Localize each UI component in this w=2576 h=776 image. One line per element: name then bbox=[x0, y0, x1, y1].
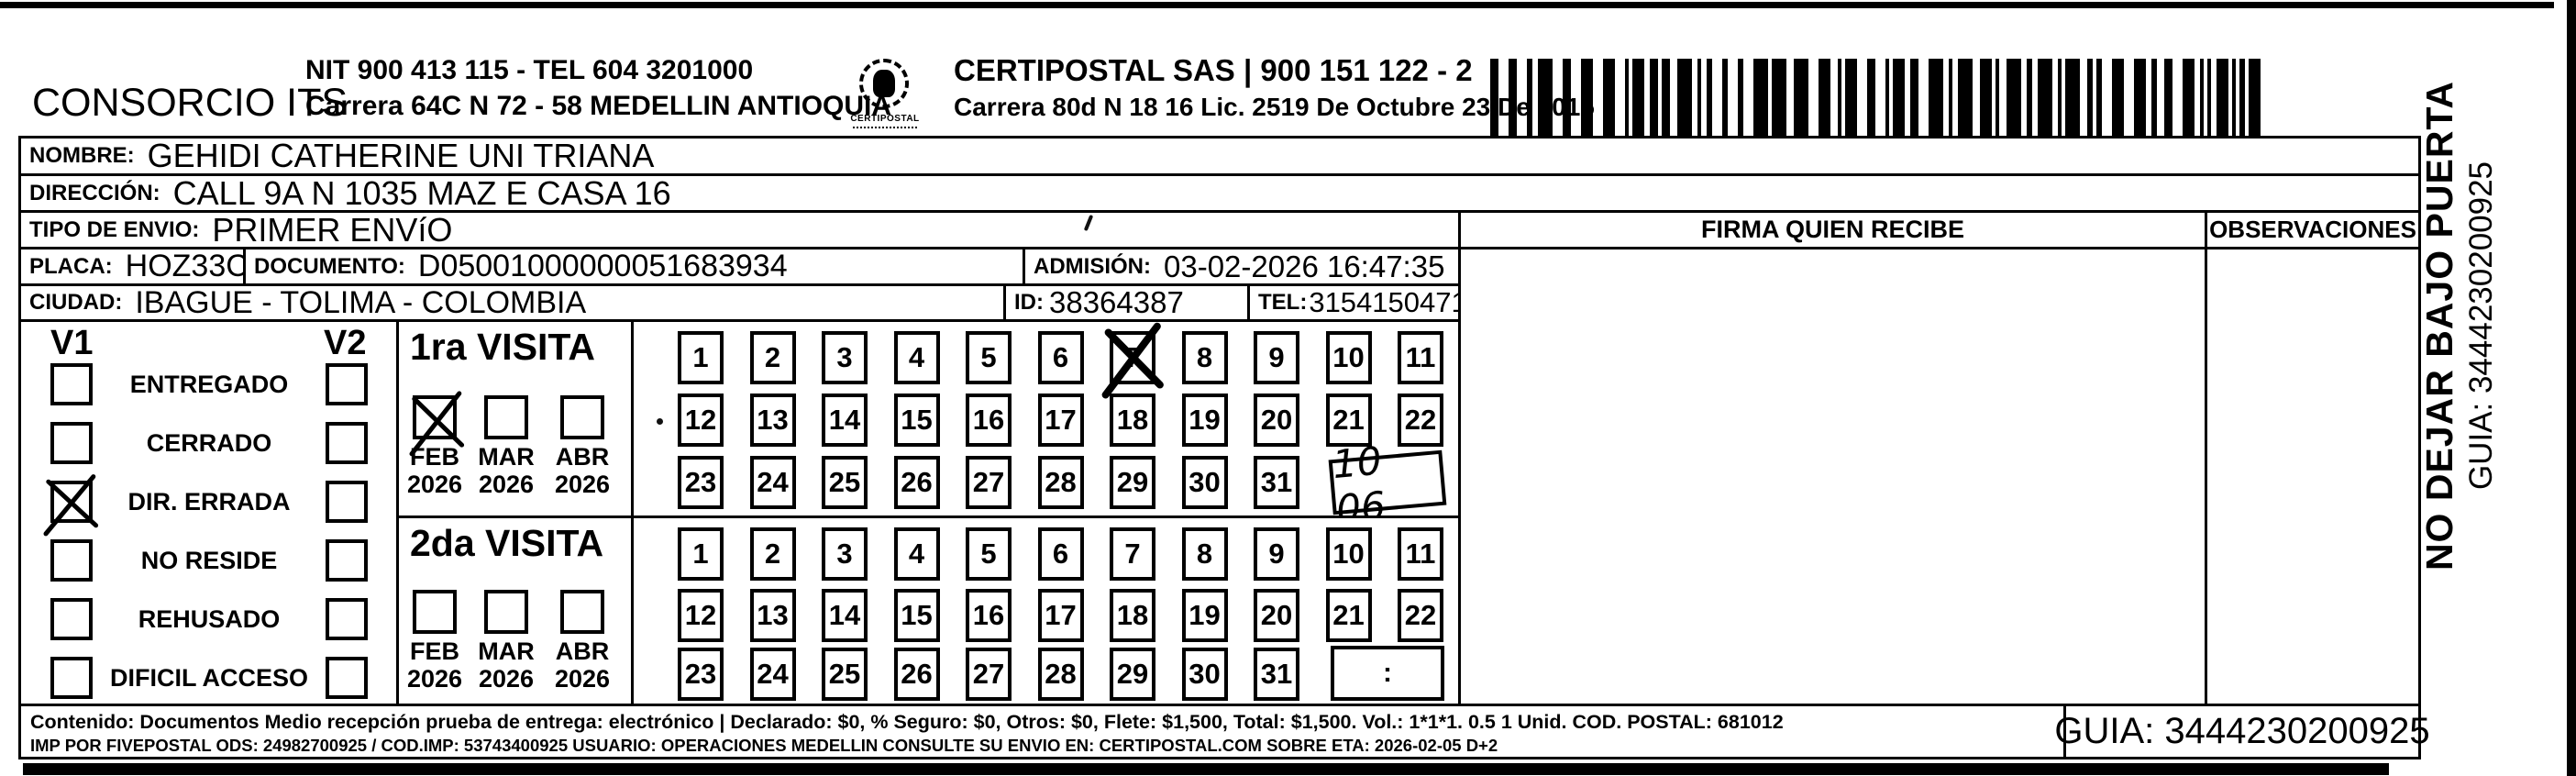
visit2-title: 2da VISITA bbox=[410, 522, 603, 565]
day-cell-26: 26 bbox=[894, 648, 940, 701]
documento-cell: DOCUMENTO: D05001000000051683934 bbox=[243, 247, 1025, 286]
visit2-month-checkbox-MAR bbox=[484, 590, 528, 634]
logo-text: CERTIPOSTAL bbox=[840, 114, 930, 124]
day-cell-16: 16 bbox=[966, 394, 1012, 447]
tipo-envio-value: PRIMER ENVíO bbox=[212, 211, 452, 249]
certipostal-logo-icon: CERTIPOSTAL bbox=[846, 59, 924, 147]
tel-value: 3154150471 bbox=[1309, 286, 1466, 319]
admision-value: 03-02-2026 16:47:35 bbox=[1164, 249, 1444, 284]
firma-header-cell: FIRMA QUIEN RECIBE bbox=[1458, 210, 2207, 249]
footer-content-line: Contenido: Documentos Medio recepción pr… bbox=[30, 711, 1784, 734]
year-label: 2026 bbox=[395, 665, 474, 693]
right-scan-line bbox=[2567, 0, 2576, 776]
day-cell-13: 13 bbox=[750, 589, 796, 642]
month-label: FEB bbox=[395, 443, 474, 471]
day-cell-9: 9 bbox=[1254, 527, 1299, 581]
year-label: 2026 bbox=[467, 665, 546, 693]
visit1-title: 1ra VISITA bbox=[410, 326, 595, 369]
firma-signature-area bbox=[1458, 247, 2207, 706]
observaciones-header: OBSERVACIONES bbox=[2209, 216, 2416, 244]
id-label: ID: bbox=[1014, 290, 1044, 316]
day-cell-14: 14 bbox=[822, 589, 868, 642]
nombre-row: NOMBRE: GEHIDI CATHERINE UNI TRIANA bbox=[18, 136, 2421, 176]
day-cell-8: 8 bbox=[1182, 331, 1228, 384]
tipo-envio-label: TIPO DE ENVIO: bbox=[29, 217, 199, 243]
day-cell-10: 10 bbox=[1326, 527, 1372, 581]
status-option-label: ENTREGADO bbox=[94, 371, 324, 399]
day-cell-19: 19 bbox=[1182, 589, 1228, 642]
day-cell-18: 18 bbox=[1110, 589, 1155, 642]
footer-content-cell: Contenido: Documentos Medio recepción pr… bbox=[18, 704, 2066, 759]
day-cell-14: 14 bbox=[822, 394, 868, 447]
day-cell-24: 24 bbox=[750, 456, 796, 509]
no-dejar-warning: NO DEJAR BAJO PUERTA bbox=[2418, 50, 2461, 601]
operator-line1: CERTIPOSTAL SAS | 900 151 122 - 2 bbox=[954, 53, 1473, 88]
day-cell-20: 20 bbox=[1254, 589, 1299, 642]
day-cell-8: 8 bbox=[1182, 527, 1228, 581]
observaciones-header-cell: OBSERVACIONES bbox=[2205, 210, 2421, 249]
day-cell-20: 20 bbox=[1254, 394, 1299, 447]
day-cell-6: 6 bbox=[1038, 527, 1084, 581]
day-cell-1: 1 bbox=[678, 331, 724, 384]
day-cell-21: 21 bbox=[1326, 589, 1372, 642]
day-cell-2: 2 bbox=[750, 527, 796, 581]
day-cell-7: 7 bbox=[1110, 527, 1155, 581]
day-cell-23: 23 bbox=[678, 648, 724, 701]
day-cell-31: 31 bbox=[1254, 456, 1299, 509]
status-panel: V1 V2 ENTREGADOCERRADODIR. ERRADANO RESI… bbox=[18, 319, 399, 706]
visit1-month-checkbox-FEB bbox=[413, 395, 457, 439]
day-cell-30: 30 bbox=[1182, 456, 1228, 509]
admision-cell: ADMISIÓN: 03-02-2026 16:47:35 bbox=[1023, 247, 1461, 286]
footer-imp-line: IMP POR FIVEPOSTAL ODS: 24982700925 / CO… bbox=[30, 736, 1498, 756]
ciudad-cell: CIUDAD: IBAGUE - TOLIMA - COLOMBIA bbox=[18, 283, 1006, 322]
day-cell-25: 25 bbox=[822, 456, 868, 509]
day-cell-23: 23 bbox=[678, 456, 724, 509]
v1-header: V1 bbox=[50, 324, 93, 363]
day-cell-17: 17 bbox=[1038, 589, 1084, 642]
day-cell-11: 11 bbox=[1398, 527, 1443, 581]
company-address-line: Carrera 64C N 72 - 58 MEDELLIN ANTIOQUIA bbox=[305, 91, 891, 122]
status-v1-checkbox-2 bbox=[50, 481, 93, 523]
ciudad-label: CIUDAD: bbox=[29, 290, 122, 316]
tracking-barcode bbox=[1490, 59, 2261, 136]
documento-value: D05001000000051683934 bbox=[418, 249, 788, 284]
footer-guia: GUIA: 3444230200925 bbox=[2054, 711, 2429, 752]
day-cell-19: 19 bbox=[1182, 394, 1228, 447]
status-v1-checkbox-0 bbox=[50, 363, 93, 405]
visit1-time-box: 10 06 bbox=[1329, 450, 1447, 515]
ciudad-value: IBAGUE - TOLIMA - COLOMBIA bbox=[135, 285, 586, 321]
day-cell-11: 11 bbox=[1398, 331, 1443, 384]
direccion-value: CALL 9A N 1035 MAZ E CASA 16 bbox=[173, 174, 671, 213]
day-cell-25: 25 bbox=[822, 648, 868, 701]
direccion-row: DIRECCIÓN: CALL 9A N 1035 MAZ E CASA 16 bbox=[18, 173, 2421, 213]
pen-dot-mark bbox=[657, 418, 663, 425]
tel-cell: TEL: 3154150471 bbox=[1247, 283, 1461, 322]
year-label: 2026 bbox=[543, 665, 622, 693]
side-label-block: NO DEJAR BAJO PUERTA GUIA: 3444230200925 bbox=[2418, 50, 2497, 601]
day-cell-12: 12 bbox=[678, 394, 724, 447]
day-cell-27: 27 bbox=[966, 456, 1012, 509]
day-cell-12: 12 bbox=[678, 589, 724, 642]
day-cell-24: 24 bbox=[750, 648, 796, 701]
day-cell-4: 4 bbox=[894, 331, 940, 384]
placa-value: HOZ33C bbox=[126, 249, 249, 284]
nombre-value: GEHIDI CATHERINE UNI TRIANA bbox=[148, 137, 655, 175]
status-v1-checkbox-5 bbox=[50, 657, 93, 699]
day-cell-10: 10 bbox=[1326, 331, 1372, 384]
day-cell-5: 5 bbox=[966, 331, 1012, 384]
visit1-months-panel: 1ra VISITA FEB2026MAR2026ABR2026 bbox=[396, 319, 634, 518]
status-option-label: NO RESIDE bbox=[94, 547, 324, 575]
day-cell-2: 2 bbox=[750, 331, 796, 384]
top-scan-line bbox=[0, 2, 2554, 8]
visit1-day-grid: 10 06 1234567891011121314151617181920212… bbox=[631, 319, 1461, 518]
visit2-month-checkbox-FEB bbox=[413, 590, 457, 634]
observaciones-area bbox=[2205, 247, 2421, 706]
month-label: MAR bbox=[467, 443, 546, 471]
visit2-time-box: : bbox=[1331, 646, 1444, 701]
day-cell-26: 26 bbox=[894, 456, 940, 509]
day-cell-22: 22 bbox=[1398, 589, 1443, 642]
day-cell-13: 13 bbox=[750, 394, 796, 447]
day-cell-9: 9 bbox=[1254, 331, 1299, 384]
day-cell-21: 21 bbox=[1326, 394, 1372, 447]
status-v2-checkbox-5 bbox=[326, 657, 368, 699]
status-v2-checkbox-0 bbox=[326, 363, 368, 405]
status-v1-checkbox-4 bbox=[50, 598, 93, 640]
year-label: 2026 bbox=[543, 471, 622, 499]
day-cell-29: 29 bbox=[1110, 648, 1155, 701]
nombre-label: NOMBRE: bbox=[29, 143, 135, 169]
day-cell-1: 1 bbox=[678, 527, 724, 581]
status-v2-checkbox-2 bbox=[326, 481, 368, 523]
visit1-month-checkbox-ABR bbox=[560, 395, 604, 439]
id-value: 38364387 bbox=[1049, 285, 1184, 320]
tel-label: TEL: bbox=[1258, 290, 1307, 316]
direccion-label: DIRECCIÓN: bbox=[29, 181, 160, 206]
day-cell-31: 31 bbox=[1254, 648, 1299, 701]
day-cell-3: 3 bbox=[822, 527, 868, 581]
visit2-day-grid: : 12345678910111213141516171819202122232… bbox=[631, 515, 1461, 706]
day-cell-29: 29 bbox=[1110, 456, 1155, 509]
status-v1-checkbox-3 bbox=[50, 539, 93, 582]
month-label: FEB bbox=[395, 637, 474, 666]
day-cell-4: 4 bbox=[894, 527, 940, 581]
postal-delivery-form: CONSORCIO ITS NIT 900 413 115 - TEL 604 … bbox=[0, 0, 2576, 776]
v2-header: V2 bbox=[324, 324, 366, 363]
day-cell-17: 17 bbox=[1038, 394, 1084, 447]
company-nit-line: NIT 900 413 115 - TEL 604 3201000 bbox=[305, 55, 753, 86]
status-option-label: CERRADO bbox=[94, 429, 324, 458]
day-cell-5: 5 bbox=[966, 527, 1012, 581]
day-cell-28: 28 bbox=[1038, 456, 1084, 509]
bottom-scan-bar bbox=[23, 763, 2389, 775]
day-cell-15: 15 bbox=[894, 394, 940, 447]
status-option-label: DIR. ERRADA bbox=[94, 488, 324, 516]
side-guia: GUIA: 3444230200925 bbox=[2463, 50, 2500, 601]
firma-header: FIRMA QUIEN RECIBE bbox=[1701, 216, 1964, 244]
month-label: MAR bbox=[467, 637, 546, 666]
month-label: ABR bbox=[543, 637, 622, 666]
id-cell: ID: 38364387 bbox=[1003, 283, 1250, 322]
month-label: ABR bbox=[543, 443, 622, 471]
day-cell-7: 7 bbox=[1110, 331, 1155, 384]
day-cell-28: 28 bbox=[1038, 648, 1084, 701]
day-cell-16: 16 bbox=[966, 589, 1012, 642]
status-v2-checkbox-1 bbox=[326, 422, 368, 464]
visit1-month-checkbox-MAR bbox=[484, 395, 528, 439]
status-option-label: REHUSADO bbox=[94, 605, 324, 634]
visit2-month-checkbox-ABR bbox=[560, 590, 604, 634]
day-cell-30: 30 bbox=[1182, 648, 1228, 701]
day-cell-3: 3 bbox=[822, 331, 868, 384]
day-cell-18: 18 bbox=[1110, 394, 1155, 447]
status-v2-checkbox-3 bbox=[326, 539, 368, 582]
day-cell-27: 27 bbox=[966, 648, 1012, 701]
placa-label: PLACA: bbox=[29, 254, 113, 280]
day-cell-15: 15 bbox=[894, 589, 940, 642]
admision-label: ADMISIÓN: bbox=[1034, 254, 1151, 280]
documento-label: DOCUMENTO: bbox=[254, 254, 405, 280]
status-option-label: DIFICIL ACCESO bbox=[94, 664, 324, 693]
status-v2-checkbox-4 bbox=[326, 598, 368, 640]
day-cell-22: 22 bbox=[1398, 394, 1443, 447]
placa-cell: PLACA: HOZ33C bbox=[18, 247, 246, 286]
year-label: 2026 bbox=[395, 471, 474, 499]
footer-guia-cell: GUIA: 3444230200925 bbox=[2063, 704, 2421, 759]
status-v1-checkbox-1 bbox=[50, 422, 93, 464]
company-name: CONSORCIO ITS bbox=[32, 81, 348, 126]
year-label: 2026 bbox=[467, 471, 546, 499]
visit2-months-panel: 2da VISITA FEB2026MAR2026ABR2026 bbox=[396, 515, 634, 706]
tipo-envio-cell: TIPO DE ENVIO: PRIMER ENVíO bbox=[18, 210, 1461, 249]
logo-subline bbox=[853, 127, 917, 128]
day-cell-6: 6 bbox=[1038, 331, 1084, 384]
